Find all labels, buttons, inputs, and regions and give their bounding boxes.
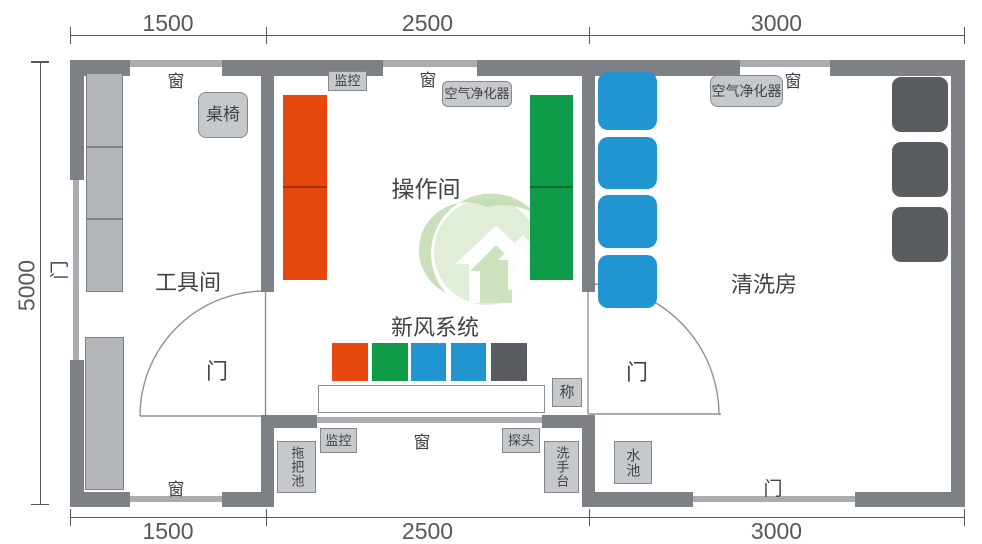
operation-bench-green <box>530 95 573 280</box>
bench-divider <box>283 186 327 188</box>
cleaning-blue-unit-3 <box>598 195 657 248</box>
room-label-tool: 工具间 <box>138 268 238 294</box>
cleaning-blue-unit-4 <box>598 255 657 308</box>
door-label-left: 门 <box>46 250 70 290</box>
mop-sink-label: 拖把池 <box>290 446 304 488</box>
wall-bottom-segment-2 <box>222 492 274 507</box>
wall-notch-top-2 <box>542 415 595 428</box>
window-operation-bottom <box>317 417 542 423</box>
tool-room-cabinet-upper <box>86 73 123 292</box>
dimension-bottom-2500: 2500 <box>266 518 589 544</box>
cabinet-divider <box>86 218 123 220</box>
monitor-label: 监控 <box>325 434 351 448</box>
dimension-tick <box>31 61 49 63</box>
window-label: 窗 <box>773 69 813 89</box>
desk-chair-box: 桌椅 <box>198 92 248 138</box>
wall-left-upper <box>70 60 84 180</box>
air-purifier-label: 空气净化器 <box>444 87 509 101</box>
cleaning-blue-unit-1 <box>598 72 657 130</box>
cleaning-dark-unit-3 <box>892 207 948 262</box>
wall-bottom-segment-3 <box>583 492 693 507</box>
wall-left-lower <box>70 360 84 507</box>
fresh-air-unit-green <box>372 343 408 381</box>
fresh-air-unit-orange <box>332 343 368 381</box>
cabinet-divider <box>86 146 123 148</box>
door-label-bottom: 门 <box>748 477 798 497</box>
fresh-air-system-label: 新风系统 <box>375 313 495 339</box>
monitor-box-top: 监控 <box>328 71 367 91</box>
watermark-logo <box>419 194 548 305</box>
dimension-top-3000: 3000 <box>589 10 964 37</box>
window-label: 窗 <box>408 68 448 88</box>
wall-notch-top-1 <box>261 415 317 428</box>
desk-chair-label: 桌椅 <box>206 106 240 124</box>
wash-basin-label: 洗手台 <box>555 446 569 488</box>
wash-basin-box: 洗手台 <box>544 441 579 493</box>
window-label: 窗 <box>156 477 196 497</box>
window-label: 窗 <box>402 430 442 450</box>
door-label-tool-room: 门 <box>192 357 242 383</box>
room-label-cleaning: 清洗房 <box>714 270 814 296</box>
cleaning-blue-unit-2 <box>598 137 657 189</box>
fresh-air-unit-blue-2 <box>451 343 486 381</box>
tool-room-cabinet-lower <box>85 337 124 490</box>
operation-bench-orange <box>283 95 327 280</box>
operation-workbench <box>318 385 545 413</box>
scale-label: 称 <box>559 385 574 401</box>
floor-plan: 桌椅 监控 空气净化器 空气净化器 监控 探头 拖把池 洗手台 水池 称 工具间… <box>0 0 982 544</box>
wall-right <box>951 60 965 507</box>
probe-box: 探头 <box>502 428 540 453</box>
air-purifier-box-operation: 空气净化器 <box>442 81 512 107</box>
probe-label: 探头 <box>508 434 534 448</box>
dimension-bottom-3000: 3000 <box>589 518 964 544</box>
wall-bottom-segment-1 <box>70 492 130 507</box>
door-left-wall <box>73 180 79 360</box>
monitor-label: 监控 <box>334 74 360 88</box>
dimension-top-1500: 1500 <box>70 10 266 37</box>
door-swing-tool-room <box>140 291 266 416</box>
cleaning-dark-unit-2 <box>892 142 948 197</box>
dimension-tick <box>31 504 49 506</box>
wall-operation-cleaning <box>582 60 595 292</box>
water-sink-label: 水池 <box>626 448 641 478</box>
dimension-top-2500: 2500 <box>266 10 589 37</box>
window-label: 窗 <box>156 69 196 89</box>
fresh-air-unit-blue-1 <box>411 343 446 381</box>
dimension-bottom-1500: 1500 <box>70 518 266 544</box>
bench-divider <box>530 186 573 188</box>
fresh-air-unit-gray <box>491 343 527 381</box>
door-label-cleaning-room: 门 <box>612 358 662 384</box>
wall-bottom-segment-4 <box>855 492 965 507</box>
water-sink-box: 水池 <box>614 441 652 484</box>
monitor-box-bottom: 监控 <box>320 428 357 453</box>
wall-top-segment-4 <box>830 60 965 76</box>
room-label-operation: 操作间 <box>361 173 491 201</box>
scale-box: 称 <box>552 378 582 407</box>
dimension-left-5000: 5000 <box>14 246 41 326</box>
cleaning-dark-unit-1 <box>892 77 948 132</box>
mop-sink-box: 拖把池 <box>277 441 316 493</box>
wall-tool-operation <box>261 60 274 292</box>
air-purifier-label: 空气净化器 <box>712 84 782 99</box>
